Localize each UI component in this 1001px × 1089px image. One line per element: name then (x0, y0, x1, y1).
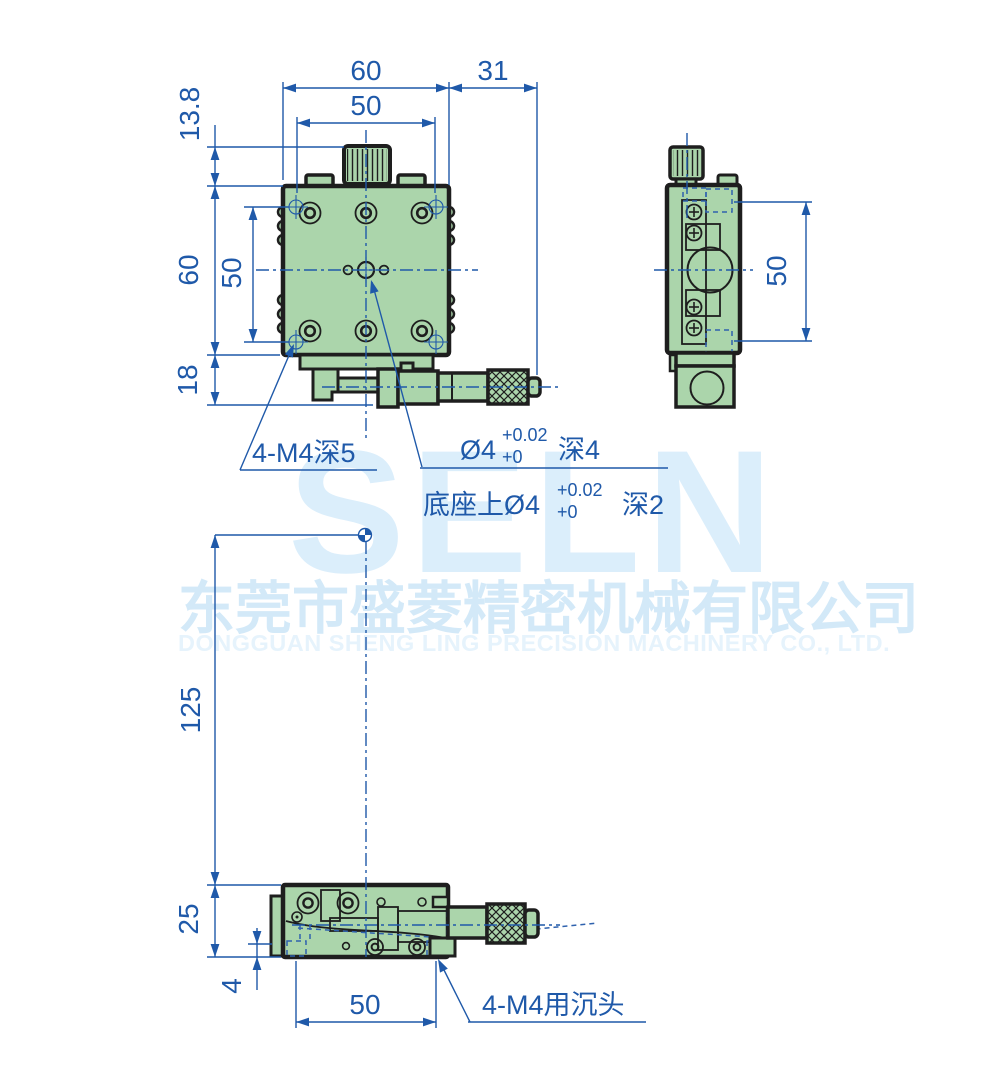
dim-top-60: 60 (283, 55, 449, 92)
dim-label-top-60: 60 (350, 55, 381, 86)
dim-left-18: 18 (172, 355, 219, 405)
side-body (667, 185, 740, 353)
note-base-tol-low: +0 (557, 502, 578, 522)
thimble-knurling-2 (488, 905, 524, 942)
dim-top-31: 31 (449, 55, 537, 92)
spindle (338, 378, 378, 392)
note-center-tol-up: +0.02 (502, 425, 548, 445)
clamp-collar (378, 369, 398, 407)
note-base-screws: 4-M4用沉头 (434, 957, 646, 1022)
top-view (278, 146, 540, 407)
dim-label-top-31: 31 (477, 55, 508, 86)
dim-25: 25 (173, 885, 219, 957)
dim-label-25: 25 (173, 903, 204, 934)
side-micrometer-mount (670, 353, 734, 407)
dim-label-18: 18 (172, 364, 203, 395)
note-center-depth: 深4 (558, 435, 600, 465)
dim-label-bottom-50: 50 (349, 989, 380, 1020)
note-base-tol-up: +0.02 (557, 480, 603, 500)
note-center-dia: Ø4 (460, 435, 496, 465)
engineering-drawing: SELN 东莞市盛菱精密机械有限公司 DONGGUAN SHENG LING P… (0, 0, 1001, 1089)
note-corner-holes-text: 4-M4深5 (252, 438, 356, 468)
note-center-tol-low: +0 (502, 447, 523, 467)
dim-label-13-8: 13.8 (174, 87, 205, 142)
dim-label-side-50: 50 (761, 255, 792, 286)
micrometer-top-view (300, 355, 540, 407)
dim-left-13-8: 13.8 (174, 87, 219, 186)
dim-label-left-60: 60 (173, 254, 204, 285)
note-base-screws-text: 4-M4用沉头 (482, 990, 625, 1020)
dim-label-left-50: 50 (216, 257, 247, 288)
note-base-prefix: 底座上Ø4 (423, 490, 540, 520)
dim-label-top-50: 50 (350, 90, 381, 121)
dim-top-50: 50 (297, 90, 435, 127)
bottom-view (271, 885, 598, 957)
knob-knurling (347, 149, 387, 181)
dim-left-60: 60 (173, 186, 219, 355)
micrometer-cap-2 (525, 910, 538, 937)
watermark-company-en: DONGGUAN SHENG LING PRECISION MACHINERY … (178, 630, 890, 656)
dim-side-50: 50 (761, 202, 810, 341)
dim-4: 4 (216, 928, 261, 994)
base-foot (313, 369, 338, 400)
side-view (667, 147, 740, 407)
micrometer-barrel-2 (448, 907, 487, 938)
dim-bottom-50: 50 (296, 989, 436, 1026)
datum-point (359, 529, 372, 542)
note-base-depth: 深2 (622, 490, 664, 520)
dim-label-4: 4 (216, 978, 247, 994)
dim-left-50: 50 (216, 207, 257, 342)
drawing-canvas: SELN 东莞市盛菱精密机械有限公司 DONGGUAN SHENG LING P… (0, 0, 1001, 1089)
dim-label-125: 125 (175, 687, 206, 734)
